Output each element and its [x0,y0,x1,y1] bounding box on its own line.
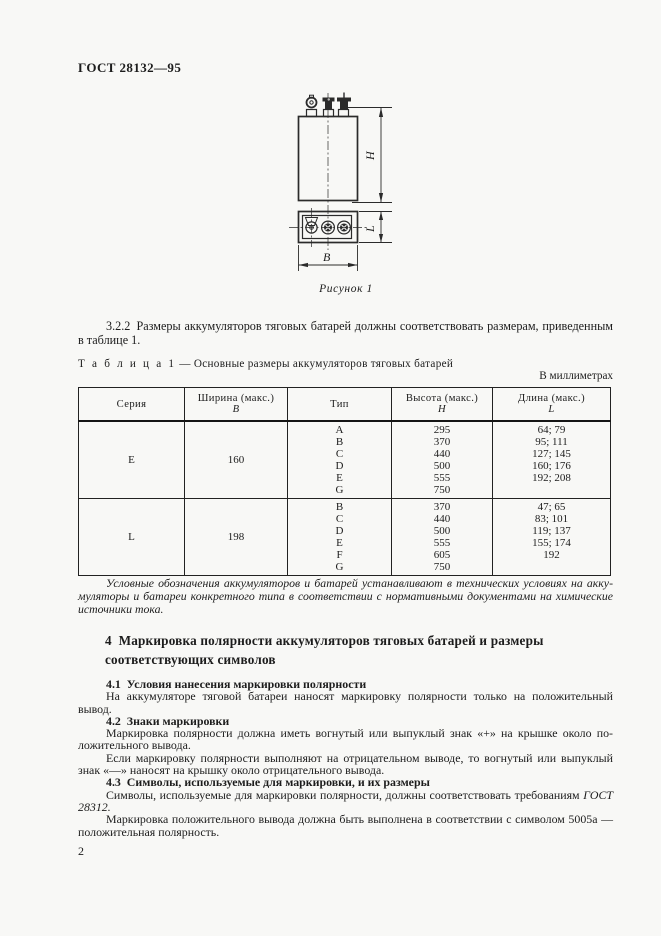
table-label: Т а б л и ц а 1 [78,358,176,370]
type-value: C [288,448,391,460]
subsection-4-3-body-1: Символы, используемые для маркировки пол… [78,789,613,814]
subsection-4-3-body-2: Маркировка положительного вывода должна … [78,813,613,838]
type-value: F [288,549,391,561]
height-values: 370 440 500 555 605 750 [392,499,493,576]
table-title-text: — Основные размеры аккумуляторов тяговых… [176,358,453,370]
dim-b-label: B [323,250,331,264]
length-value: 127; 145 [493,448,610,460]
length-value: 192 [493,549,610,561]
col-header-series: Серия [79,388,185,422]
width-value: 160 [185,421,288,499]
paragraph-3-2-2: 3.2.2 Размеры аккумуляторов тяговых бата… [78,319,613,347]
table-row-series-e: Е 160 A B C D E G 295 370 440 500 555 75… [79,421,611,499]
dim-h-label: H [363,150,377,161]
height-value: 555 [392,537,492,549]
length-values: 47; 65 83; 101 119; 137 155; 174 192 [493,499,611,576]
height-value: 500 [392,525,492,537]
height-value: 370 [392,436,492,448]
type-values: B C D E F G [288,499,392,576]
battery-drawing: H [0,0,661,300]
table-footnote: Условные обозначения аккумуляторов и бат… [78,577,613,617]
type-value: B [288,501,391,513]
col-header-length: Длина (макс.)L [493,388,611,422]
document-page: ГОСТ 28132—95 [0,0,661,936]
units-note: В миллиметрах [78,370,613,382]
length-value: 47; 65 [493,501,610,513]
height-value: 500 [392,460,492,472]
table-row-series-l: L 198 B C D E F G 370 440 500 555 605 75… [79,499,611,576]
dimensions-table: Серия Ширина (макс.)В Тип Высота (макс.)… [78,387,611,576]
col-header-width: Ширина (макс.)В [185,388,288,422]
subsection-4-2-body-2: Если маркировку полярности выполняют на … [78,752,613,777]
length-values: 64; 79 95; 111 127; 145 160; 176 192; 20… [493,421,611,499]
page-number: 2 [78,844,84,859]
height-value: 750 [392,484,492,496]
series-value: L [79,499,185,576]
length-value: 155; 174 [493,537,610,549]
height-value: 295 [392,424,492,436]
length-value: 83; 101 [493,513,610,525]
section-4-heading: 4 Маркировка полярности аккумуляторов тя… [105,631,573,669]
type-values: A B C D E G [288,421,392,499]
type-value: A [288,424,391,436]
dimension-L: L [359,212,392,243]
type-value: D [288,525,391,537]
height-value: 440 [392,513,492,525]
table-header-row: Серия Ширина (макс.)В Тип Высота (макс.)… [79,388,611,422]
type-value: E [288,537,391,549]
body-text: Символы, используемые для маркировки пол… [106,788,583,802]
width-value: 198 [185,499,288,576]
height-value: 605 [392,549,492,561]
height-value: 370 [392,501,492,513]
height-values: 295 370 440 500 555 750 [392,421,493,499]
col-header-type: Тип [288,388,392,422]
figure-caption: Рисунок 1 [78,283,614,295]
type-value: G [288,561,391,573]
length-value [493,561,610,573]
type-value: B [288,436,391,448]
length-value: 119; 137 [493,525,610,537]
section-4-body: 4.1 Условия нанесения маркировки полярно… [78,678,613,838]
subsection-4-1-body: На аккумуляторе тяговой батареи наносят … [78,690,613,715]
series-value: Е [79,421,185,499]
type-value: C [288,513,391,525]
length-value: 160; 176 [493,460,610,472]
battery-top-view [289,208,369,247]
type-value: G [288,484,391,496]
table-title: Т а б л и ц а 1 — Основные размеры аккум… [78,358,613,370]
height-value: 440 [392,448,492,460]
col-header-height: Высота (макс.)Н [392,388,493,422]
length-value [493,484,610,496]
type-value: E [288,472,391,484]
length-value: 95; 111 [493,436,610,448]
subsection-4-2-body-1: Маркировка полярности должна иметь вогну… [78,727,613,752]
dimension-H: H [347,108,392,203]
height-value: 555 [392,472,492,484]
length-value: 64; 79 [493,424,610,436]
height-value: 750 [392,561,492,573]
dim-l-label: L [363,225,377,233]
type-value: D [288,460,391,472]
length-value: 192; 208 [493,472,610,484]
